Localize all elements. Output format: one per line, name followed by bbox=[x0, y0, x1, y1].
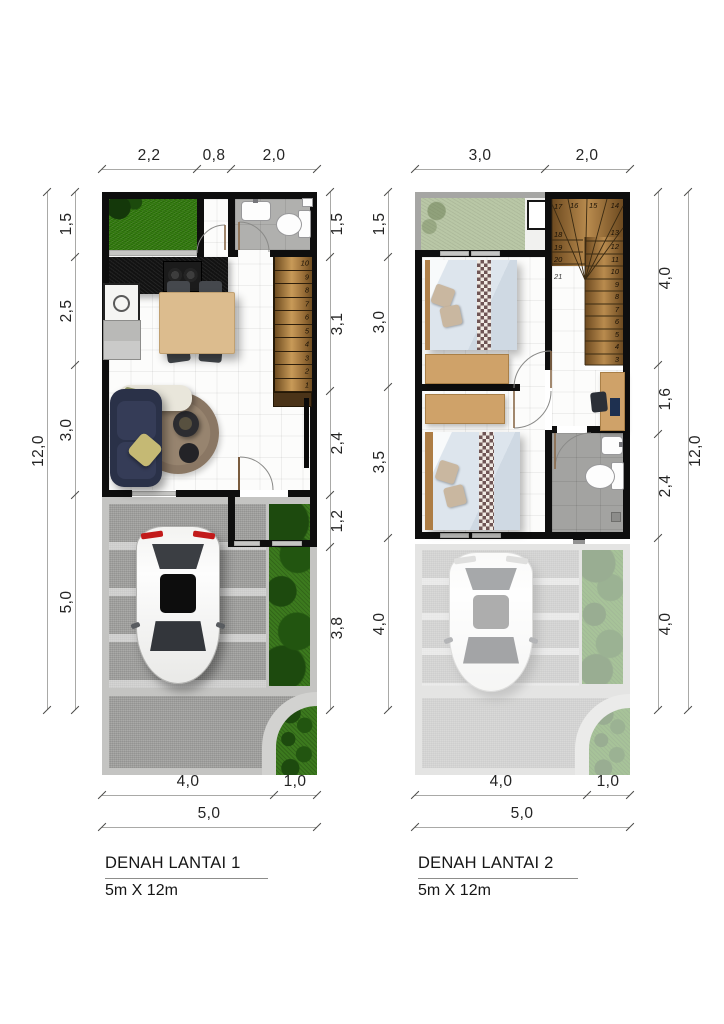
stair-number: 6 bbox=[615, 317, 619, 326]
dim-label: 3,1 bbox=[329, 313, 347, 336]
stair-number: 18 bbox=[554, 230, 562, 239]
stair-number: 9 bbox=[615, 280, 619, 289]
plan-subtitle: 5m X 12m bbox=[105, 882, 178, 900]
stair-number: 16 bbox=[570, 201, 578, 210]
toilet-bowl bbox=[276, 213, 302, 236]
dim-label: 5,0 bbox=[511, 805, 534, 823]
bed bbox=[425, 432, 520, 530]
stair-number: 12 bbox=[611, 242, 619, 251]
dim-label: 2,4 bbox=[329, 432, 347, 455]
dim-label: 4,0 bbox=[657, 613, 675, 636]
dim-label: 12,0 bbox=[30, 435, 48, 467]
stair-number: 5 bbox=[305, 326, 309, 335]
garden-grass bbox=[108, 198, 197, 250]
coffee-table-tray bbox=[179, 417, 192, 430]
stair-number: 14 bbox=[611, 201, 619, 210]
desk bbox=[425, 394, 505, 424]
bed-headboard bbox=[425, 432, 433, 530]
stair-step: 10 bbox=[275, 257, 312, 271]
stair-number: 3 bbox=[305, 353, 309, 362]
wall bbox=[228, 250, 238, 257]
stair-number: 8 bbox=[615, 292, 619, 301]
window-sill bbox=[471, 251, 500, 256]
stair-number: 10 bbox=[611, 267, 619, 276]
wall bbox=[102, 490, 132, 497]
stair-number: 1 bbox=[305, 380, 309, 389]
dim-line-top bbox=[102, 169, 317, 170]
dim-line-bottom bbox=[415, 795, 630, 796]
dim-line-bottom bbox=[102, 795, 317, 796]
bed-pillow bbox=[439, 304, 463, 328]
dim-label: 2,4 bbox=[657, 475, 675, 498]
stair-number: 20 bbox=[554, 255, 562, 264]
dim-label: 3,0 bbox=[58, 419, 76, 442]
dim-label: 1,6 bbox=[657, 388, 675, 411]
plan-lantai-1: 2,2 0,8 2,0 1,5 2,5 3,0 5,0 12,0 1,5 3,1… bbox=[102, 192, 317, 775]
wall bbox=[623, 192, 630, 539]
floor-drain bbox=[611, 512, 621, 522]
wall bbox=[176, 490, 240, 497]
stair-step: 2 bbox=[275, 365, 312, 379]
title-underline bbox=[105, 878, 268, 879]
stair-number: 2 bbox=[305, 367, 309, 376]
window-sill bbox=[272, 541, 302, 546]
dim-label: 4,0 bbox=[177, 773, 200, 791]
wall bbox=[422, 384, 520, 391]
stair-number: 19 bbox=[554, 243, 562, 252]
plan-subtitle: 5m X 12m bbox=[418, 882, 491, 900]
bed bbox=[425, 260, 517, 350]
washer-door bbox=[113, 295, 130, 312]
desk-item bbox=[610, 398, 620, 416]
plan-title: DENAH LANTAI 1 bbox=[105, 854, 240, 873]
stair-number: 8 bbox=[305, 286, 309, 295]
dim-label: 2,2 bbox=[138, 147, 161, 165]
dim-label: 4,0 bbox=[371, 613, 389, 636]
stair-number: 21 bbox=[554, 272, 562, 281]
dim-label: 1,5 bbox=[58, 213, 76, 236]
stair-number: 3 bbox=[615, 355, 619, 364]
car-sunroof bbox=[160, 574, 196, 613]
wall bbox=[197, 192, 204, 257]
toilet-bowl bbox=[585, 464, 615, 489]
window-sill bbox=[440, 533, 469, 538]
dim-label: 3,5 bbox=[371, 451, 389, 474]
dim-label: 1,5 bbox=[329, 213, 347, 236]
dining-table bbox=[159, 292, 235, 354]
dim-label: 5,0 bbox=[58, 591, 76, 614]
window-sill bbox=[472, 533, 501, 538]
floor-plan-sheet: 2,2 0,8 2,0 1,5 2,5 3,0 5,0 12,0 1,5 3,1… bbox=[0, 0, 724, 1024]
dim-label: 4,0 bbox=[657, 267, 675, 290]
plan-title: DENAH LANTAI 2 bbox=[418, 854, 553, 873]
window-sill bbox=[132, 491, 176, 496]
roof-garden bbox=[421, 198, 525, 250]
stair-step: 4 bbox=[275, 338, 312, 352]
stair-step: 3 bbox=[275, 352, 312, 366]
desk bbox=[425, 354, 509, 384]
garden-strip bbox=[269, 504, 310, 686]
wall bbox=[545, 192, 630, 199]
wall bbox=[102, 192, 317, 199]
desk-chair bbox=[590, 391, 608, 413]
wall bbox=[545, 192, 552, 370]
stair-number: 7 bbox=[305, 299, 309, 308]
car-rear-window bbox=[152, 544, 204, 569]
dim-label: 1,0 bbox=[597, 773, 620, 791]
fade-overlay bbox=[415, 540, 630, 775]
stair-step: 7 bbox=[275, 298, 312, 312]
window bbox=[527, 200, 547, 230]
front-door-leaf bbox=[238, 457, 240, 490]
washing-machine bbox=[103, 283, 140, 322]
dim-label: 4,0 bbox=[490, 773, 513, 791]
window-sill bbox=[109, 250, 197, 256]
plan-lantai-2: 3,0 2,0 1,5 3,0 3,5 4,0 4,0 1,6 2,4 4,0 … bbox=[415, 192, 630, 775]
sofa bbox=[110, 389, 162, 487]
dim-label: 3,8 bbox=[329, 617, 347, 640]
sofa-cushion bbox=[117, 401, 156, 440]
stair-number: 9 bbox=[305, 272, 309, 281]
toilet-paper-holder bbox=[302, 198, 313, 207]
coffee-table bbox=[173, 411, 199, 437]
wall bbox=[288, 490, 317, 497]
dim-label: 1,5 bbox=[371, 213, 389, 236]
wall bbox=[270, 250, 317, 257]
stair-number: 6 bbox=[305, 313, 309, 322]
stair-number: 10 bbox=[301, 259, 309, 268]
stair-step: 6 bbox=[275, 311, 312, 325]
stair-number: 13 bbox=[611, 228, 619, 237]
stair-landing-floor bbox=[552, 266, 585, 370]
wall bbox=[552, 426, 557, 433]
staircase: 10 9 8 7 6 5 4 3 2 1 bbox=[273, 257, 312, 392]
dim-label: 2,0 bbox=[576, 147, 599, 165]
stair-number: 5 bbox=[615, 330, 619, 339]
sink bbox=[241, 201, 271, 221]
wall bbox=[228, 497, 235, 540]
bed-blanket-checker bbox=[477, 260, 491, 350]
stair-step: 1 bbox=[275, 379, 312, 393]
stair-step: 9 bbox=[275, 271, 312, 285]
stair-step: 5 bbox=[275, 325, 312, 339]
bed-blanket-checker bbox=[479, 432, 494, 530]
dim-line-top bbox=[415, 169, 630, 170]
dim-label: 3,0 bbox=[371, 311, 389, 334]
stair-number: 7 bbox=[615, 305, 619, 314]
wall bbox=[545, 430, 552, 539]
dim-label: 12,0 bbox=[687, 435, 705, 467]
wall bbox=[415, 250, 422, 539]
dim-label: 5,0 bbox=[198, 805, 221, 823]
dim-line-bottom-total bbox=[102, 827, 317, 828]
refrigerator bbox=[103, 320, 141, 360]
car-windshield bbox=[150, 621, 206, 651]
car bbox=[132, 522, 224, 690]
dim-label: 1,0 bbox=[284, 773, 307, 791]
faucet bbox=[253, 199, 258, 203]
dim-label: 0,8 bbox=[203, 147, 226, 165]
stair-number: 4 bbox=[305, 340, 309, 349]
dim-label: 1,2 bbox=[329, 510, 347, 533]
stair-number: 11 bbox=[611, 255, 619, 264]
faucet bbox=[619, 442, 623, 447]
stair-number: 15 bbox=[589, 201, 597, 210]
dim-label: 3,0 bbox=[469, 147, 492, 165]
dim-label: 2,0 bbox=[263, 147, 286, 165]
dim-label: 2,5 bbox=[58, 300, 76, 323]
window-sill bbox=[234, 541, 260, 546]
wall bbox=[228, 192, 235, 257]
stair-number: 4 bbox=[615, 342, 619, 351]
window-sill bbox=[440, 251, 469, 256]
dim-line-bottom-total bbox=[415, 827, 630, 828]
coffee-table-small bbox=[179, 443, 199, 463]
tv bbox=[304, 398, 309, 468]
stair-number: 17 bbox=[554, 202, 562, 211]
dim-line-left bbox=[75, 192, 76, 710]
stair-step: 8 bbox=[275, 284, 312, 298]
title-underline bbox=[418, 878, 578, 879]
